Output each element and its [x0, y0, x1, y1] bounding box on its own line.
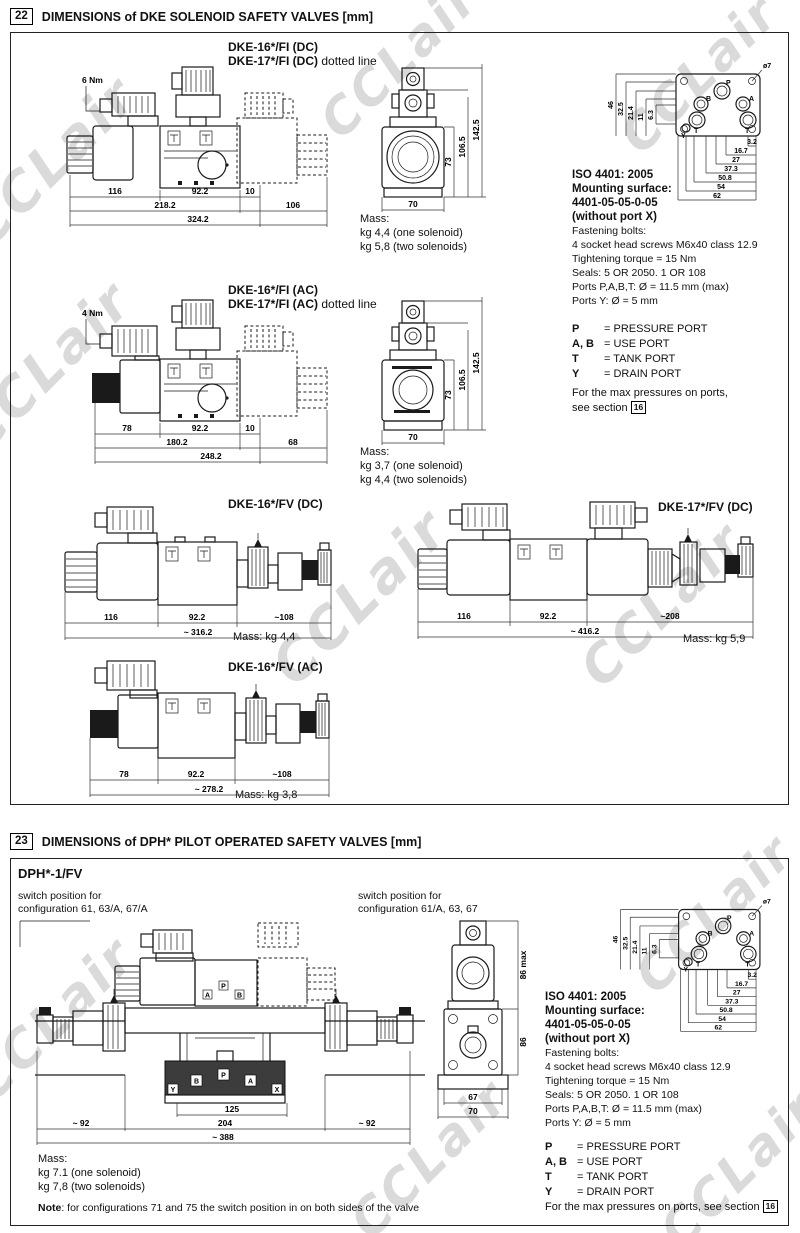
section-title: DIMENSIONS of DPH* PILOT OPERATED SAFETY…	[42, 835, 422, 849]
main-port-x: X	[275, 1087, 280, 1094]
dim: 92.2	[192, 423, 209, 433]
torque-label: 6 Nm	[82, 75, 103, 85]
section-number-badge: 22	[10, 8, 33, 25]
solenoid	[118, 695, 158, 748]
svg-text:27: 27	[733, 990, 741, 997]
svg-text:21.4: 21.4	[632, 940, 639, 953]
main-body-front	[444, 1009, 502, 1075]
legend-row: P= PRESSURE PORT	[572, 322, 728, 337]
dim: 92.2	[192, 186, 209, 196]
svg-text:78: 78	[119, 769, 129, 779]
dim: 142.5	[471, 119, 481, 141]
port-label-b: B	[706, 96, 711, 103]
svg-text:204: 204	[218, 1118, 232, 1128]
dim: 16.7	[734, 148, 748, 155]
svg-text:46: 46	[613, 935, 620, 943]
manual-override-cap	[67, 136, 93, 173]
dim: 324.2	[187, 214, 209, 224]
legend-row: P= PRESSURE PORT	[545, 1140, 778, 1155]
dotted-solenoid	[258, 958, 307, 1006]
dim: 180.2	[166, 437, 188, 447]
dim: 78	[122, 423, 132, 433]
svg-text:11: 11	[642, 947, 649, 954]
mass-fv-dc16: Mass: kg 4,4	[233, 630, 295, 644]
svg-text:116: 116	[457, 611, 471, 621]
override-detail	[198, 151, 226, 179]
valve-body	[510, 539, 587, 600]
ac-end-cap	[92, 373, 120, 403]
svg-text:~ 92: ~ 92	[359, 1118, 376, 1128]
dim: 106	[286, 200, 300, 210]
dke-fv-dc17-side-view: 116 92.2 ~208 ~ 416.2	[405, 497, 790, 647]
catalog-page: CCLair CCLair CCLair CCLair CCLair CCLai…	[0, 0, 800, 1233]
svg-text:~208: ~208	[660, 611, 679, 621]
svg-text:ø7: ø7	[763, 899, 771, 906]
svg-text:~ 388: ~ 388	[212, 1132, 234, 1142]
svg-text:P: P	[727, 915, 732, 922]
dph-front-view: 86 max 86 67 70	[430, 893, 540, 1128]
legend-row: A, B= USE PORT	[545, 1155, 778, 1170]
port-label-t: T	[694, 128, 699, 135]
solenoid-left	[120, 360, 160, 413]
pilot-solenoid-front	[452, 945, 494, 1001]
svg-text:92.2: 92.2	[540, 611, 557, 621]
svg-text:Y: Y	[683, 966, 688, 973]
dke-fi-dc-side-view: 6 Nm 116 92.2 10	[40, 55, 340, 235]
model-line-1: DKE-16*/FI (DC)	[228, 40, 377, 54]
iso-text-block: ISO 4401: 2005 Mounting surface: 4401-05…	[545, 990, 731, 1130]
solenoid-left	[93, 126, 133, 180]
dim: 46	[608, 101, 615, 109]
dke-fv-ac16-side-view: 78 92.2 ~108 ~ 278.2	[35, 658, 390, 803]
svg-text:~ 416.2: ~ 416.2	[571, 626, 600, 636]
dke-fv-dc16-side-view: 116 92.2 ~108 ~ 316.2	[35, 505, 390, 650]
section-23-header: 23 DIMENSIONS of DPH* PILOT OPERATED SAF…	[10, 833, 421, 850]
svg-text:70: 70	[468, 1106, 478, 1116]
dim: 10	[245, 423, 255, 433]
svg-text:70: 70	[408, 432, 418, 442]
port-label-p: P	[726, 80, 731, 87]
svg-text:~ 278.2: ~ 278.2	[195, 784, 224, 794]
main-port-a: A	[248, 1079, 253, 1086]
port-legend: P= PRESSURE PORT A, B= USE PORT T= TANK …	[572, 322, 728, 416]
main-port-b: B	[194, 1079, 199, 1086]
pilot-port-p: P	[221, 984, 226, 991]
svg-text:106.5: 106.5	[457, 369, 467, 391]
dke-fi-dc-front-view: 73 106.5 142.5 70	[352, 60, 497, 215]
dph-note: Note: for configurations 71 and 75 the s…	[38, 1202, 419, 1214]
svg-text:A: A	[749, 931, 754, 938]
dim: 248.2	[200, 451, 222, 461]
pilot-solenoid	[140, 958, 195, 1005]
legend-row: T= TANK PORT	[545, 1170, 778, 1185]
dph-side-view: A P B B P A Y X	[15, 903, 445, 1148]
svg-text:~ 316.2: ~ 316.2	[184, 627, 213, 637]
dim-phi7: ø7	[763, 63, 771, 70]
svg-text:6.3: 6.3	[651, 944, 658, 954]
port-legend: P= PRESSURE PORT A, B= USE PORT T= TANK …	[545, 1140, 778, 1215]
svg-text:92.2: 92.2	[189, 612, 206, 622]
section-16-reference: 16	[631, 401, 646, 414]
dim: 73	[443, 157, 453, 167]
iso-text-block: ISO 4401: 2005 Mounting surface: 4401-05…	[572, 168, 758, 308]
dim: 106.5	[457, 136, 467, 158]
dim: 10	[245, 186, 255, 196]
solenoid	[97, 543, 158, 600]
svg-text:142.5: 142.5	[471, 352, 481, 374]
dim: 70	[408, 199, 418, 209]
svg-text:16.7: 16.7	[735, 981, 748, 988]
section-16-reference: 16	[763, 1200, 778, 1213]
solenoid-left	[447, 540, 510, 595]
dotted-solenoid	[237, 351, 297, 416]
dim: 6.3	[648, 110, 655, 120]
svg-text:32.5: 32.5	[622, 937, 629, 950]
main-body-top	[125, 1008, 325, 1033]
port-label-y: Y	[681, 133, 686, 140]
mass-fv-ac16: Mass: kg 3,8	[235, 788, 297, 802]
solenoid-right	[587, 539, 648, 595]
dotted-solenoid	[237, 118, 297, 183]
dim: 27	[732, 157, 740, 164]
section-22-header: 22 DIMENSIONS of DKE SOLENOID SAFETY VAL…	[10, 8, 373, 25]
legend-row: T= TANK PORT	[572, 352, 728, 367]
port-label-t2: T	[745, 128, 750, 135]
svg-text:3.2: 3.2	[747, 972, 757, 979]
port-label-a: A	[749, 96, 754, 103]
svg-text:73: 73	[443, 390, 453, 400]
legend-row: Y= DRAIN PORT	[545, 1185, 778, 1200]
dke-fi-ac-side-view: 4 Nm 78 92.2 10 180.2 68 248.2	[40, 288, 340, 468]
dim: 3.2	[747, 139, 757, 146]
dim: 21.4	[628, 106, 635, 120]
svg-text:116: 116	[104, 612, 118, 622]
main-port-p: P	[221, 1073, 226, 1080]
svg-text:~108: ~108	[274, 612, 293, 622]
svg-text:B: B	[708, 931, 713, 938]
dim: 116	[108, 186, 122, 196]
main-port-y: Y	[171, 1087, 176, 1094]
svg-text:125: 125	[225, 1104, 239, 1114]
mass-fv-dc17: Mass: kg 5,9	[683, 632, 745, 646]
svg-text:67: 67	[468, 1092, 478, 1102]
dim: 218.2	[154, 200, 176, 210]
svg-text:~108: ~108	[272, 769, 291, 779]
dph-model-title: DPH*-1/FV	[18, 866, 82, 881]
dke-fi-ac-front-view: 73 106.5 142.5 70	[352, 293, 497, 448]
svg-text:92.2: 92.2	[188, 769, 205, 779]
svg-text:86: 86	[518, 1037, 528, 1047]
valve-body	[158, 542, 237, 605]
pilot-port-a: A	[205, 993, 210, 1000]
svg-text:86 max: 86 max	[518, 950, 528, 979]
section-number-badge: 23	[10, 833, 33, 850]
svg-text:~ 92: ~ 92	[73, 1118, 90, 1128]
dim: 32.5	[618, 102, 625, 116]
svg-text:T: T	[696, 962, 701, 969]
mass-fi-dc: Mass: kg 4,4 (one solenoid) kg 5,8 (two …	[360, 212, 467, 254]
dotted-connector	[258, 923, 298, 947]
section-title: DIMENSIONS of DKE SOLENOID SAFETY VALVES…	[42, 10, 373, 24]
legend-row: A, B= USE PORT	[572, 337, 728, 352]
dim: 11	[638, 113, 645, 121]
mass-dph: Mass: kg 7.1 (one solenoid) kg 7,8 (two …	[38, 1152, 145, 1194]
legend-row: Y= DRAIN PORT	[572, 367, 728, 382]
pilot-port-b: B	[237, 993, 242, 1000]
ac-end-cap	[90, 710, 118, 738]
mass-fi-ac: Mass: kg 3,7 (one solenoid) kg 4,4 (two …	[360, 445, 467, 487]
torque-label: 4 Nm	[82, 308, 103, 318]
dim: 68	[288, 437, 298, 447]
